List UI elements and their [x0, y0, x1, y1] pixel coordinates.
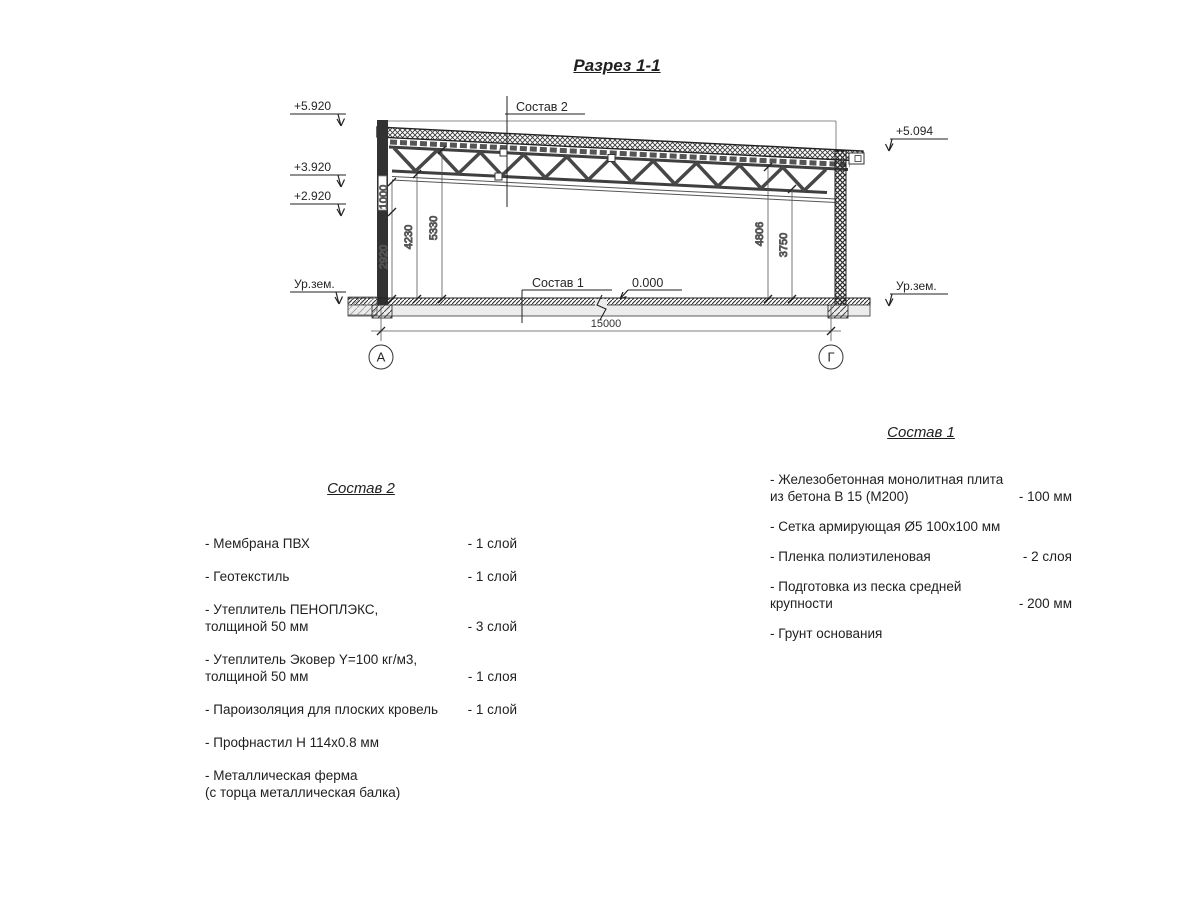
zero-level-label: 0.000	[632, 276, 663, 290]
purlin-connector	[608, 155, 615, 162]
elevation-mark-5920: +5.920	[290, 99, 346, 126]
leader-label: Состав 2	[516, 100, 568, 114]
dim-4230: 4230	[403, 225, 415, 249]
purlin-connector	[500, 149, 507, 156]
dim-1000: 1000	[378, 185, 390, 209]
ground-level-mark-right: Ур.зем.	[886, 279, 949, 306]
dim-5330: 5330	[428, 216, 440, 240]
list-item: - Пленка полиэтиленовая - 2 слоя	[770, 548, 1072, 565]
down-arrow-icon	[335, 292, 343, 304]
drawing-sheet: Разрез 1-1	[0, 0, 1200, 900]
axis-label-a: А	[377, 350, 386, 365]
floor-base-band	[348, 305, 870, 316]
list-item: - Геотекстиль - 1 слой	[205, 568, 517, 585]
list-item: - Подготовка из песка среднейкрупности -…	[770, 578, 1072, 612]
column-right	[835, 151, 846, 308]
down-arrow-icon	[337, 175, 345, 187]
axis-bubble-a: А	[369, 345, 393, 369]
elevation-mark-3920: +3.920	[290, 160, 346, 187]
list-item: - Пароизоляция для плоских кровель - 1 с…	[205, 701, 517, 718]
dim-15000: 15000	[591, 318, 622, 330]
footing-left	[372, 305, 392, 318]
elevation-mark-2920: +2.920	[290, 189, 346, 216]
vertical-dimensions-right: 4806 3750	[754, 163, 796, 303]
list-item: - Утеплитель ПЕНОПЛЭКС,толщиной 50 мм - …	[205, 601, 517, 635]
down-arrow-icon	[886, 294, 894, 306]
axis-bubble-g: Г	[819, 345, 843, 369]
list-item: - Профнастил Н 114х0.8 мм	[205, 734, 517, 751]
elevation-label: +5.094	[896, 124, 933, 138]
axis-label-g: Г	[827, 350, 834, 365]
leader-label: Состав 1	[532, 276, 584, 290]
sostav1-heading: Состав 1	[770, 424, 1072, 441]
ground-level-mark-left: Ур.зем.	[290, 277, 346, 304]
down-arrow-icon	[337, 114, 345, 126]
ground-label: Ур.зем.	[294, 277, 335, 291]
chord-connector	[495, 173, 502, 180]
elevation-label: +3.920	[294, 160, 331, 174]
zero-level-mark: 0.000	[620, 276, 682, 299]
roof-eave-plate	[855, 156, 861, 162]
dim-2920: 2920	[378, 245, 390, 269]
list-item: - Сетка армирующая Ø5 100х100 мм	[770, 518, 1072, 535]
dim-3750: 3750	[778, 233, 790, 257]
sostav2-heading: Состав 2	[205, 480, 517, 497]
list-item: - Мембрана ПВХ - 1 слой	[205, 535, 517, 552]
ground-label: Ур.зем.	[896, 279, 937, 293]
down-arrow-icon	[337, 204, 345, 216]
column-left	[377, 120, 388, 308]
list-item: - Металлическая ферма(с торца металличес…	[205, 767, 517, 801]
sostav2-list: Состав 2 - Мембрана ПВХ - 1 слой - Геоте…	[205, 480, 517, 817]
list-item: - Утеплитель Эковер Y=100 кг/м3,толщиной…	[205, 651, 517, 685]
list-item: - Железобетонная монолитная плитаиз бето…	[770, 471, 1072, 505]
sostav1-list: Состав 1 - Железобетонная монолитная пли…	[770, 424, 1072, 655]
elevation-label: +2.920	[294, 189, 331, 203]
down-arrow-icon	[886, 139, 894, 151]
elevation-mark-5094: +5.094	[886, 124, 949, 151]
elevation-label: +5.920	[294, 99, 331, 113]
list-item: - Грунт основания	[770, 625, 1072, 642]
dim-4806: 4806	[754, 222, 766, 246]
